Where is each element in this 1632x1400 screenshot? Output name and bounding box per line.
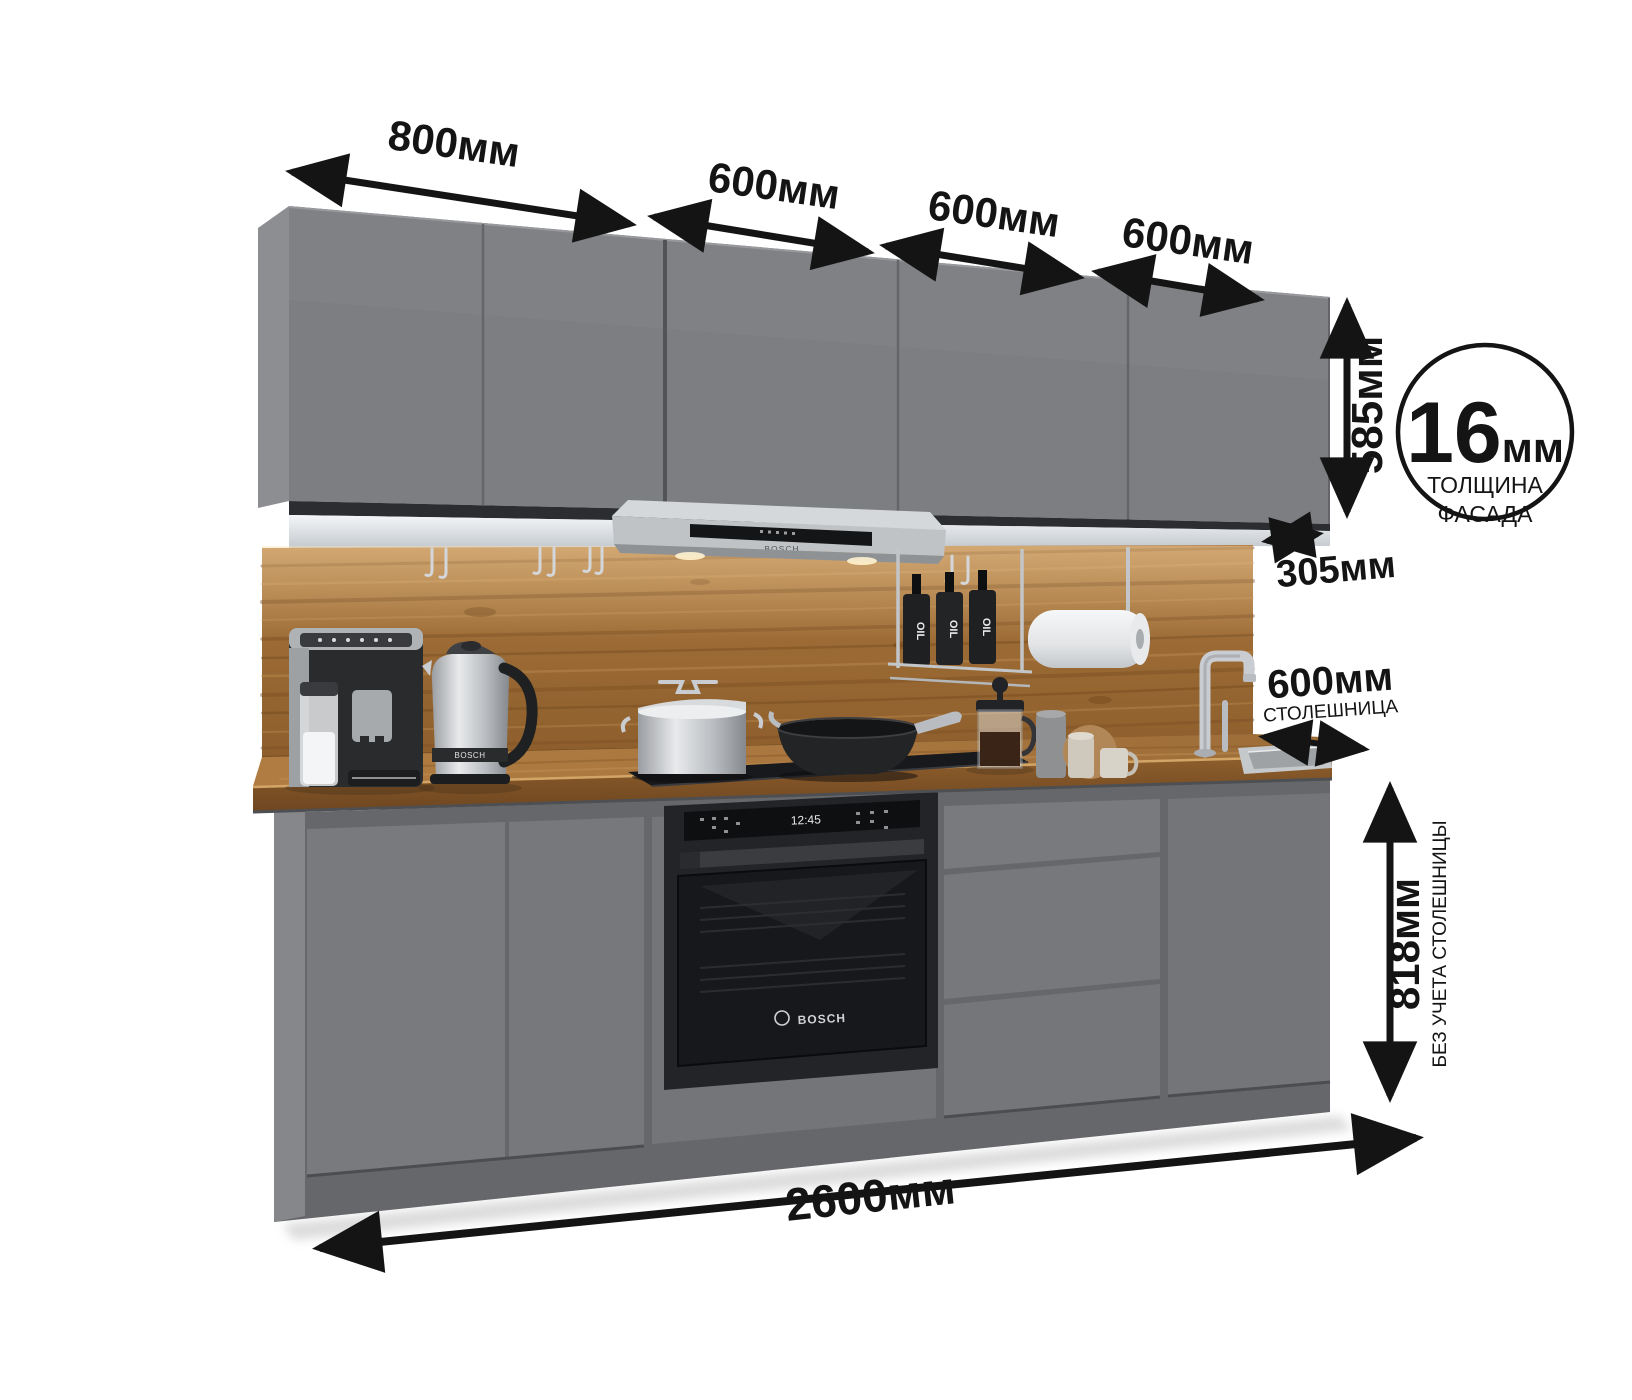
dim-width-600-1-label: 600мм	[705, 153, 842, 218]
dim-width-600-2-label: 600мм	[925, 181, 1062, 246]
oven: 12:45 BOSCH	[664, 792, 938, 1090]
upper-cabinet-side-panel	[258, 206, 289, 508]
kitchen-render: 12:45 BOSCH	[0, 0, 1632, 1400]
dim-base-height-label: 818мм	[1381, 878, 1428, 1010]
facade-thickness-badge: 16мм ТОЛЩИНА ФАСАДА	[1398, 345, 1572, 527]
svg-text:OIL: OIL	[980, 618, 992, 637]
kettle-brand: BOSCH	[455, 751, 486, 760]
base-door-left-1	[307, 822, 505, 1176]
dim-width-800: 800мм	[292, 111, 630, 224]
oven-brand: BOSCH	[797, 1011, 846, 1027]
coffee-spout	[352, 690, 392, 742]
base-door-left-2	[509, 817, 644, 1157]
drawer-front-2	[944, 857, 1160, 999]
dim-width-600-3-label: 600мм	[1119, 208, 1256, 273]
dim-width-600-1: 600мм	[654, 153, 868, 252]
facade-thickness-line2: ФАСАДА	[1438, 501, 1534, 527]
dim-upper-depth-label: 305мм	[1275, 544, 1398, 596]
coffee-machine	[285, 628, 435, 795]
dim-counter-depth-600: 600мм СТОЛЕШНИЦА	[1263, 655, 1400, 749]
dim-base-height-sublabel: БЕЗ УЧЕТА СТОЛЕШНИЦЫ	[1430, 820, 1451, 1067]
base-side-panel	[274, 791, 305, 1222]
facade-thickness-line1: ТОЛЩИНА	[1427, 472, 1543, 498]
drawer-front-3	[944, 984, 1160, 1117]
dim-upper-height-label: 585мм	[1343, 336, 1392, 475]
dim-upper-height-585: 585мм	[1343, 304, 1392, 512]
oil-bottles: OIL OIL OIL	[903, 570, 996, 666]
svg-text:OIL: OIL	[947, 620, 959, 639]
kitchen-dimensions-figure: 12:45 BOSCH	[0, 0, 1632, 1400]
dim-width-800-label: 800мм	[385, 111, 522, 176]
oven-clock: 12:45	[791, 812, 822, 827]
svg-text:OIL: OIL	[914, 622, 926, 641]
sink-cabinet-door	[1168, 793, 1330, 1096]
dim-base-height-818: 818мм БЕЗ УЧЕТА СТОЛЕШНИЦЫ	[1381, 788, 1451, 1096]
